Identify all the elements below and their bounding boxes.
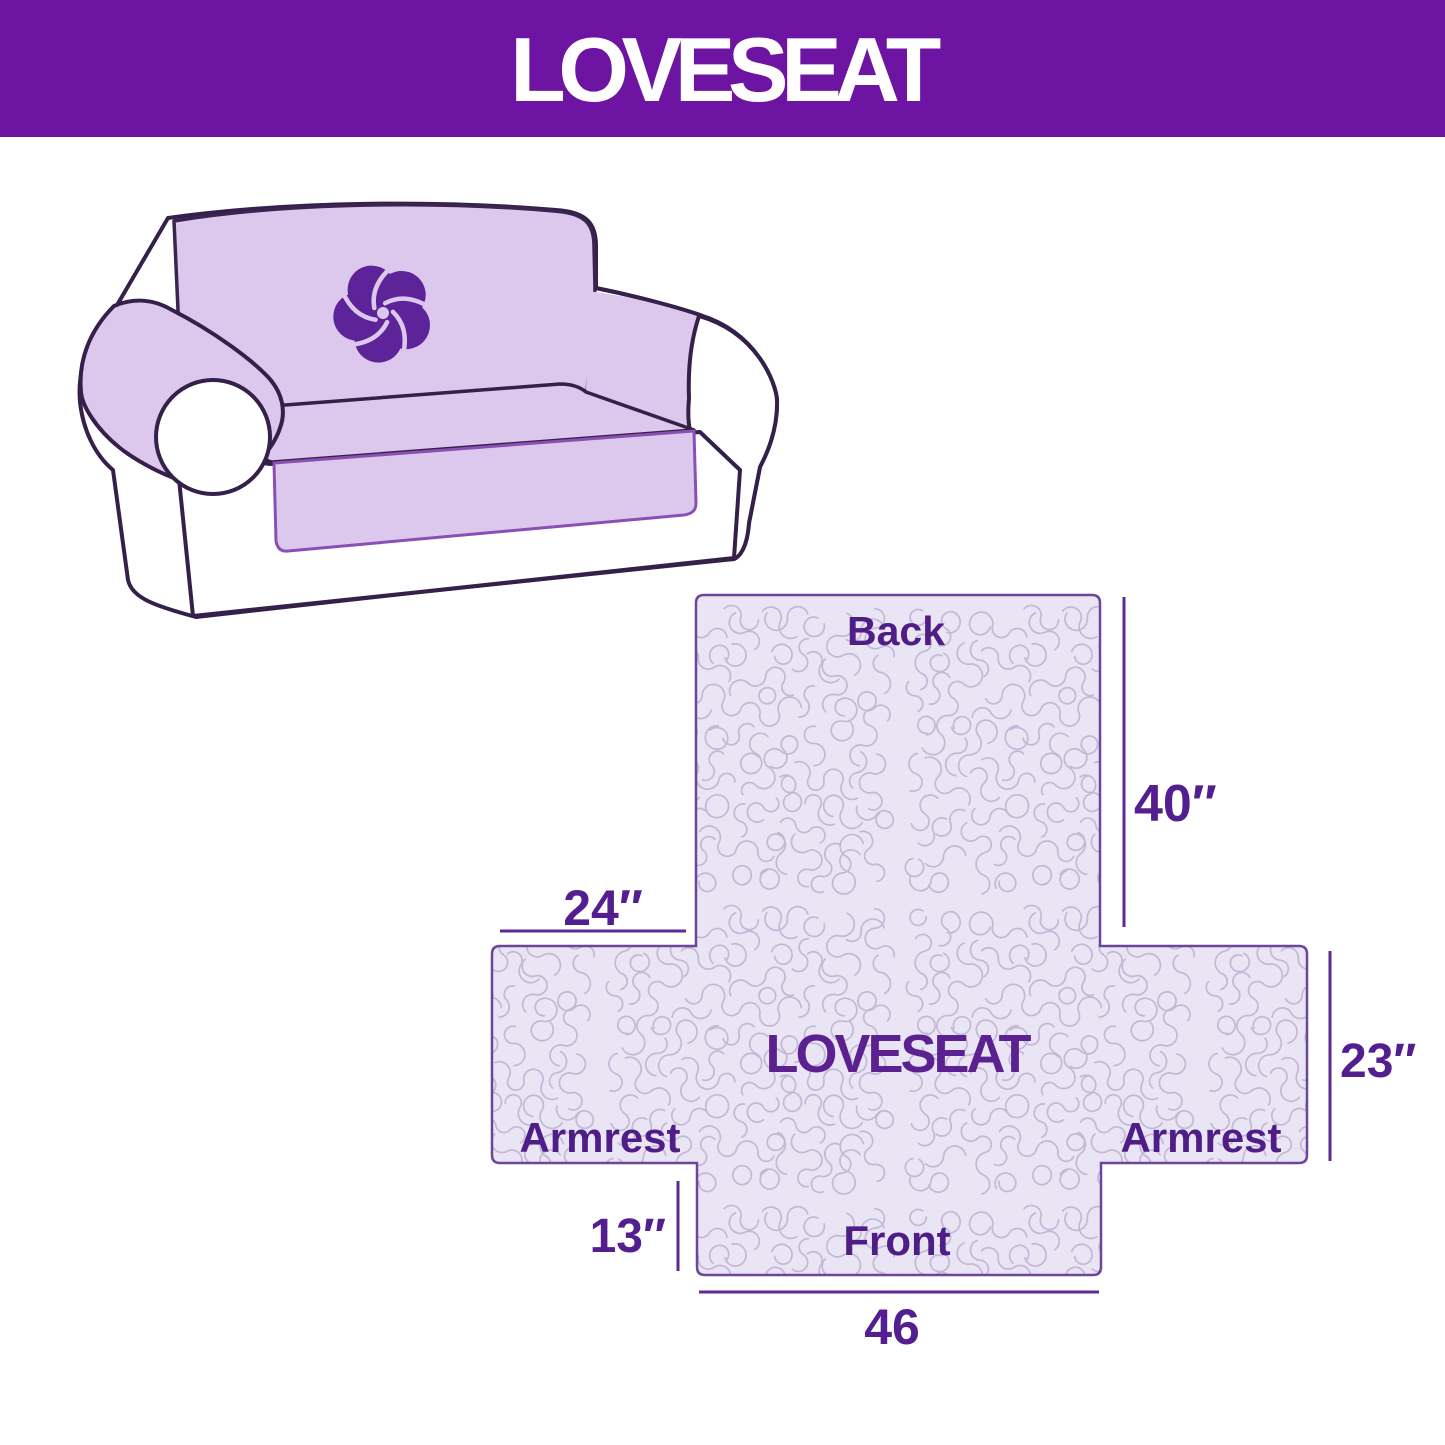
svg-text:Armrest: Armrest <box>1120 1114 1281 1161</box>
svg-text:40″: 40″ <box>1134 775 1217 833</box>
svg-text:LOVESEAT: LOVESEAT <box>510 20 941 121</box>
svg-text:Front: Front <box>843 1217 950 1264</box>
svg-text:Back: Back <box>847 608 945 654</box>
svg-text:Armrest: Armrest <box>519 1114 680 1161</box>
svg-text:46: 46 <box>864 1299 920 1355</box>
svg-text:23″: 23″ <box>1340 1035 1416 1088</box>
svg-text:24″: 24″ <box>563 880 643 936</box>
svg-text:LOVESEAT: LOVESEAT <box>765 1024 1031 1084</box>
svg-text:13″: 13″ <box>590 1210 666 1263</box>
